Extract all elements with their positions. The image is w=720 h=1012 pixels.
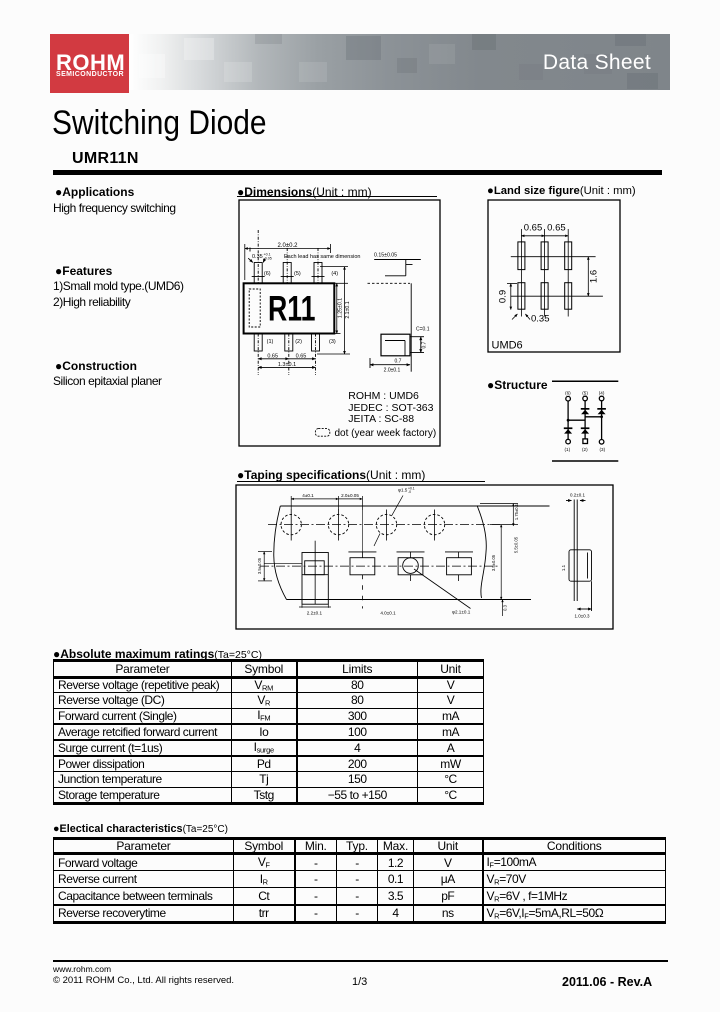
svg-text:1.0±0.3: 1.0±0.3 xyxy=(575,614,590,619)
svg-text:1.6: 1.6 xyxy=(589,270,600,283)
svg-text:Each lead has same dimension: Each lead has same dimension xyxy=(284,254,360,260)
svg-text:JEITA : SC-88: JEITA : SC-88 xyxy=(348,413,414,425)
svg-text:(1): (1) xyxy=(564,447,570,452)
svg-text:(2): (2) xyxy=(295,339,302,345)
svg-text:0.2±0.1: 0.2±0.1 xyxy=(570,493,585,498)
svg-text:φ1.5: φ1.5 xyxy=(398,488,408,493)
svg-text:1.1: 1.1 xyxy=(561,564,566,571)
svg-text:1.3±0.1: 1.3±0.1 xyxy=(278,362,296,368)
svg-text:0.15±0.05: 0.15±0.05 xyxy=(374,253,397,259)
svg-text:0.35: 0.35 xyxy=(531,314,550,325)
svg-text:(4): (4) xyxy=(599,390,605,395)
svg-text:0.3: 0.3 xyxy=(503,604,508,610)
svg-text:0.65: 0.65 xyxy=(547,223,566,234)
svg-text:(6): (6) xyxy=(264,271,271,277)
svg-text:ROHM : UMD6: ROHM : UMD6 xyxy=(348,390,419,402)
svg-text:(2): (2) xyxy=(582,447,588,452)
svg-text:0.35: 0.35 xyxy=(252,254,263,260)
svg-text:0.7: 0.7 xyxy=(422,341,428,348)
svg-text:1.75±0.1: 1.75±0.1 xyxy=(514,503,519,520)
svg-text:(1): (1) xyxy=(267,339,274,345)
svg-text:0.9: 0.9 xyxy=(498,290,509,303)
svg-text:4±0.1: 4±0.1 xyxy=(302,493,314,498)
svg-text:(3): (3) xyxy=(599,447,605,452)
svg-text:2.0±0.05: 2.0±0.05 xyxy=(341,493,359,498)
svg-text:2.1±0.1: 2.1±0.1 xyxy=(345,301,351,318)
svg-text:-0: -0 xyxy=(408,490,411,494)
svg-text:R11: R11 xyxy=(268,290,316,329)
svg-text:φ2.1±0.1: φ2.1±0.1 xyxy=(452,610,471,615)
svg-text:UMD6: UMD6 xyxy=(492,340,523,352)
svg-text:3.5±0.05: 3.5±0.05 xyxy=(257,557,262,574)
svg-text:0.7: 0.7 xyxy=(395,359,402,365)
svg-text:1.25±0.1: 1.25±0.1 xyxy=(337,298,343,318)
svg-text:0.65: 0.65 xyxy=(296,353,307,359)
svg-text:2.2±0.1: 2.2±0.1 xyxy=(307,611,323,616)
svg-text:(5): (5) xyxy=(582,390,588,395)
svg-text:4.0±0.1: 4.0±0.1 xyxy=(380,611,396,616)
svg-text:(5): (5) xyxy=(294,271,301,277)
svg-text:0.65: 0.65 xyxy=(524,223,543,234)
svg-text:(4): (4) xyxy=(331,271,338,277)
svg-text:(6): (6) xyxy=(565,390,571,395)
svg-text:3.5±0.05: 3.5±0.05 xyxy=(491,554,496,571)
svg-text:dot (year week factory): dot (year week factory) xyxy=(335,428,437,439)
svg-text:0.65: 0.65 xyxy=(267,353,278,359)
svg-text:(3): (3) xyxy=(329,339,336,345)
svg-text:5.5±0.05: 5.5±0.05 xyxy=(514,536,519,553)
svg-text:JEDEC : SOT-363: JEDEC : SOT-363 xyxy=(348,402,433,414)
svg-text:2.0±0.2: 2.0±0.2 xyxy=(278,243,299,249)
svg-text:C=0.1: C=0.1 xyxy=(416,327,430,333)
svg-text:2.0±0.1: 2.0±0.1 xyxy=(384,368,401,374)
